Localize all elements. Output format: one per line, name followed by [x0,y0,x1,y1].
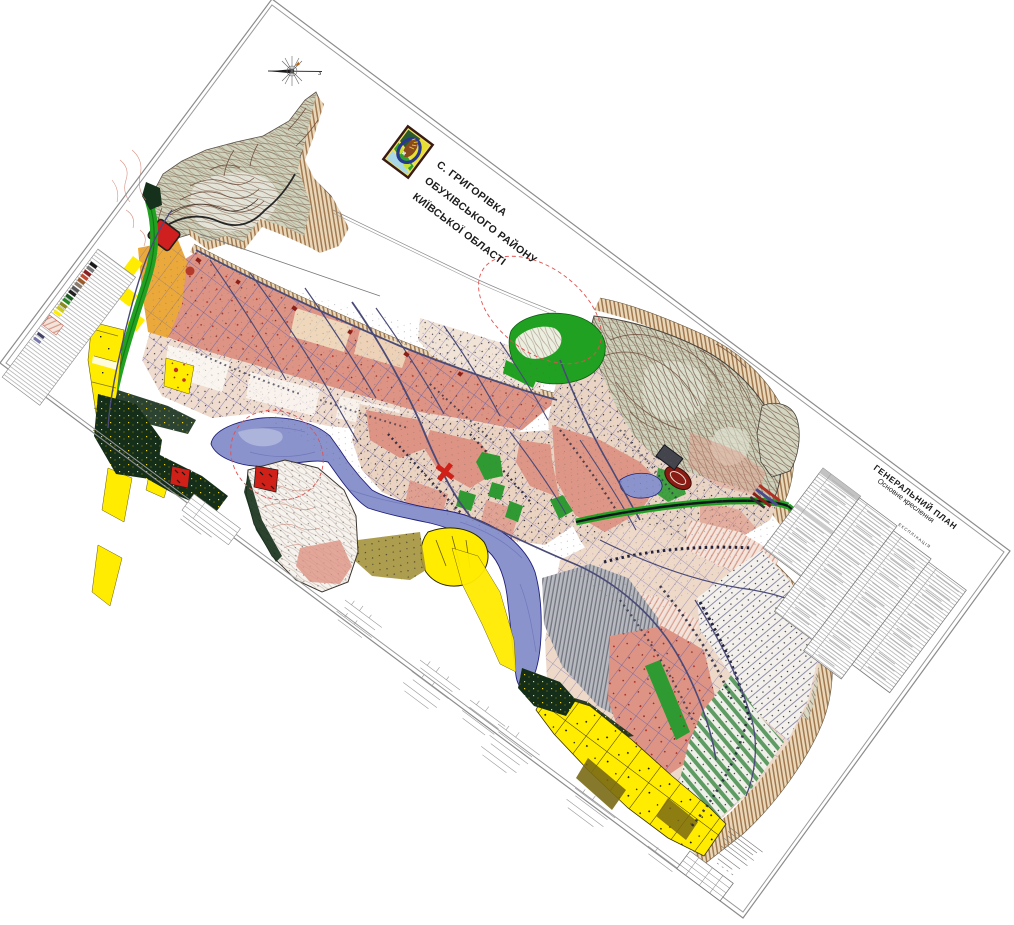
svg-text:з: з [318,70,321,77]
